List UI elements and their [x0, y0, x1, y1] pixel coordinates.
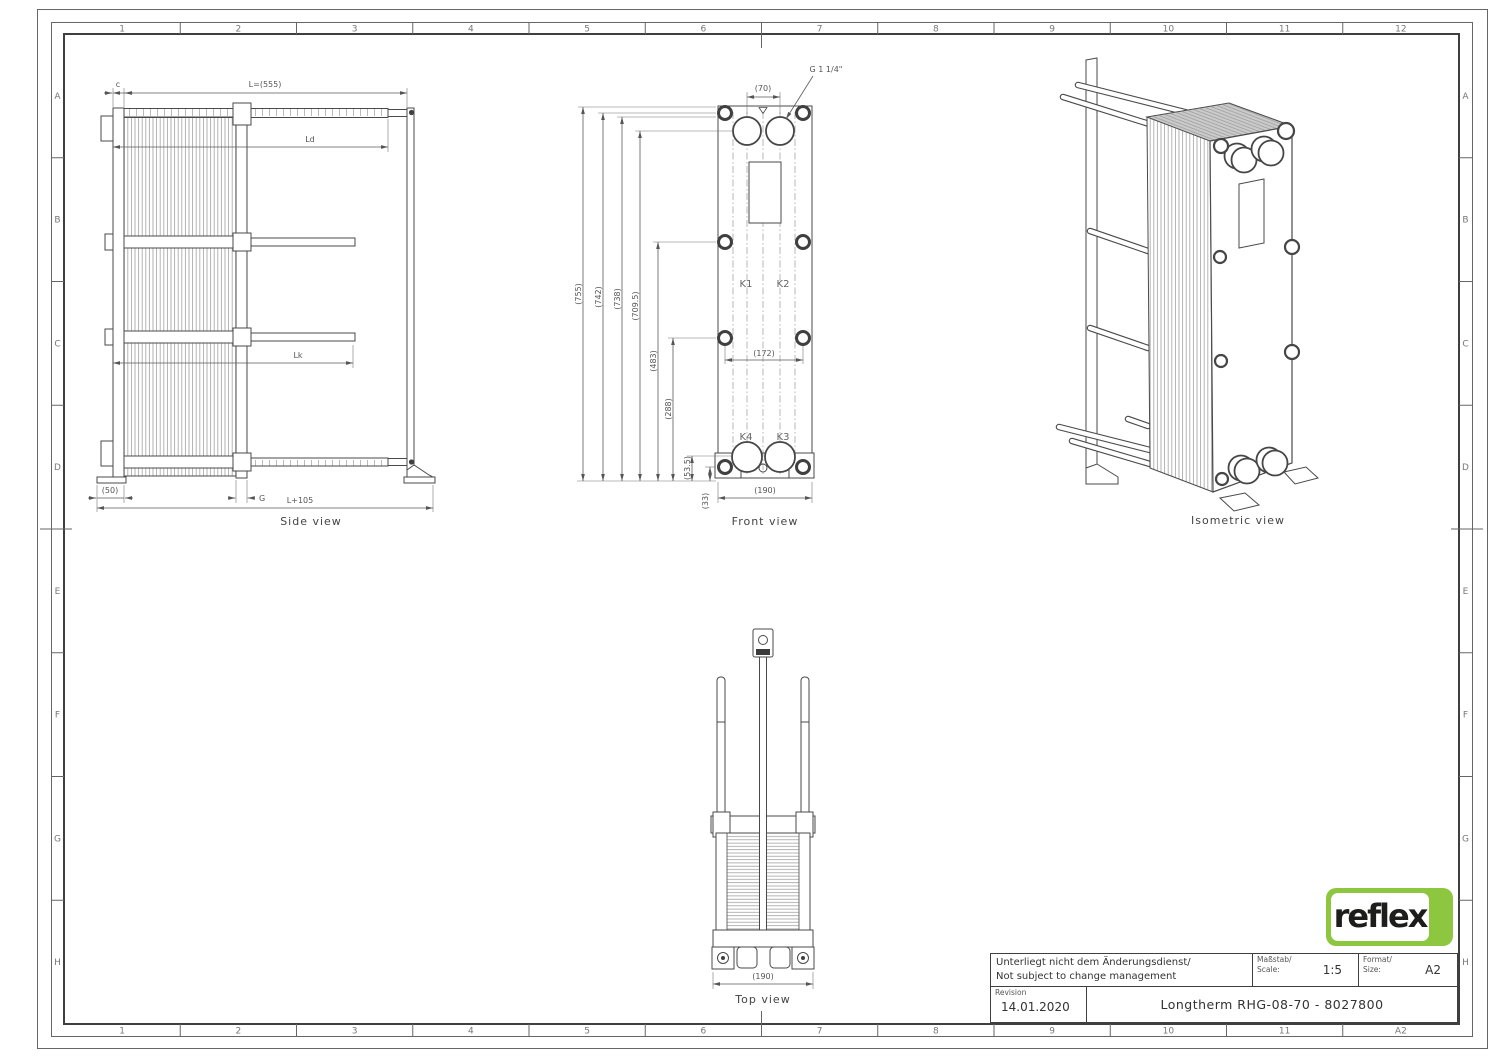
- port-k3-label: K3: [777, 432, 790, 443]
- carrying-bar-top-view: [760, 657, 767, 930]
- side-view: c L=(555) Ld Lk (50) G L+105 Side view: [88, 80, 435, 528]
- grid-col-top-12: 12: [1395, 25, 1406, 35]
- grid-row-right-G: G: [1462, 834, 1469, 844]
- grid-col-top-11: 11: [1279, 25, 1290, 35]
- revision-date: 14.01.2020: [1001, 1000, 1082, 1014]
- iso-front-plate: [1210, 126, 1292, 492]
- reflex-logo-text: reflex: [1334, 897, 1427, 935]
- tie-rod-top-view: [801, 677, 809, 817]
- grid-row-left-C: C: [54, 339, 60, 349]
- grid-col-top-9: 9: [1049, 25, 1055, 35]
- dim-height-33: (33): [701, 493, 710, 509]
- dim-Lk-label: Lk: [293, 351, 302, 360]
- tie-bolt: [797, 332, 810, 345]
- grid-col-bottom-1: 1: [119, 1027, 125, 1037]
- grid-row-right-F: F: [1463, 711, 1468, 721]
- dim-top-width-label: (190): [752, 972, 774, 981]
- pressure-plate: [236, 108, 247, 478]
- grid-row-left-F: F: [55, 711, 60, 721]
- dim-foot-label: (50): [102, 486, 118, 495]
- grid-col-bottom-8: 8: [933, 1027, 939, 1037]
- nameplate: [749, 162, 781, 223]
- tie-bolt: [719, 107, 732, 120]
- dim-port-spacing-label: (70): [755, 84, 771, 93]
- dim-Ld-label: Ld: [305, 135, 315, 144]
- side-view-label: Side view: [280, 515, 342, 528]
- bottom-tie-rod: [251, 458, 388, 466]
- grid-col-top-1: 1: [119, 25, 125, 35]
- change-note-en: Not subject to change management: [996, 970, 1247, 984]
- carrying-bar: [124, 109, 388, 118]
- grid-row-left-E: E: [55, 587, 61, 597]
- grid-col-bottom-A2: A2: [1395, 1027, 1407, 1037]
- front-view: K1 K2 K4 K3 (70) G 1 1/4" (755) (742) (7…: [574, 65, 842, 528]
- dim-bolt-spacing-label: (172): [753, 349, 775, 358]
- format-cell: Format/ Size: A2: [1359, 954, 1457, 986]
- left-foot: [97, 477, 126, 483]
- grid-row-left-H: H: [54, 958, 61, 968]
- reflex-logo-inner: reflex: [1331, 893, 1429, 941]
- lower-guide-rod: [247, 333, 355, 341]
- grid-row-right-E: E: [1463, 587, 1469, 597]
- port-top-view: [770, 947, 790, 968]
- format-label-de: Format/: [1363, 955, 1392, 964]
- port-k3: [765, 442, 795, 472]
- drawing-title: Longtherm RHG-08-70 - 8027800: [1087, 987, 1457, 1022]
- dim-front-width-label: (190): [754, 486, 776, 495]
- dim-L-label: L=(555): [249, 80, 282, 89]
- grid-row-right-C: C: [1462, 339, 1468, 349]
- grid-col-top-2: 2: [236, 25, 242, 35]
- dim-height-755: (755): [574, 283, 583, 305]
- format-value: A2: [1425, 963, 1441, 977]
- scale-value: 1:5: [1323, 963, 1342, 977]
- dim-height-483: (483): [649, 350, 658, 372]
- grid-col-top-6: 6: [701, 25, 707, 35]
- port-thread-label: G 1 1/4": [810, 65, 843, 74]
- top-view: (190) Top view: [711, 629, 815, 1006]
- grid-col-top-8: 8: [933, 25, 939, 35]
- top-view-label: Top view: [734, 993, 790, 1006]
- grid-col-top-10: 10: [1163, 25, 1175, 35]
- scale-label-de: Maßstab/: [1257, 955, 1292, 964]
- grid-row-left-G: G: [54, 834, 61, 844]
- format-label-en: Size:: [1363, 965, 1381, 974]
- port-k1: [733, 117, 761, 145]
- scale-cell: Maßstab/ Scale: 1:5: [1253, 954, 1359, 986]
- grid-col-bottom-10: 10: [1163, 1027, 1175, 1037]
- tie-bolt: [797, 107, 810, 120]
- grid-col-top-4: 4: [468, 25, 474, 35]
- iso-support-column: [1086, 58, 1097, 472]
- iso-port: [1235, 459, 1260, 484]
- grid-col-bottom-7: 7: [817, 1027, 823, 1037]
- front-view-label: Front view: [732, 515, 799, 528]
- grid-row-left-B: B: [54, 216, 60, 226]
- port-k2: [766, 117, 794, 145]
- dim-c-label: c: [116, 80, 120, 89]
- grid-row-left-A: A: [54, 92, 61, 102]
- fixed-plate: [113, 108, 124, 478]
- dim-height-53-5: (53.5): [683, 456, 692, 480]
- grid-col-top-5: 5: [584, 25, 590, 35]
- tie-rod-top-view: [717, 677, 725, 817]
- tie-bolt: [719, 236, 732, 249]
- grid-col-bottom-5: 5: [584, 1027, 590, 1037]
- support-column: [407, 108, 414, 470]
- grid-row-left-D: D: [54, 463, 61, 473]
- tie-bolt: [797, 236, 810, 249]
- grid-col-top-3: 3: [352, 25, 358, 35]
- change-note: Unterliegt nicht dem Änderungsdienst/ No…: [991, 954, 1253, 986]
- port-k2-label: K2: [777, 279, 790, 290]
- grid-row-right-A: A: [1462, 92, 1469, 102]
- upper-guide-rod: [247, 238, 355, 246]
- tie-bolt: [797, 461, 810, 474]
- port-top-view: [737, 947, 757, 968]
- plate-pack-side: [124, 117, 236, 476]
- grid-col-bottom-3: 3: [352, 1027, 358, 1037]
- revision-cell: Revision 14.01.2020: [991, 987, 1087, 1022]
- grid-col-top-7: 7: [817, 25, 823, 35]
- tie-bolt: [719, 461, 732, 474]
- drawing-sheet: 1122334455667788991010111112A2AABBCCDDEE…: [0, 0, 1500, 1061]
- grid-row-right-H: H: [1462, 958, 1469, 968]
- dim-G-label: G: [259, 494, 265, 503]
- isometric-view: Isometric view: [1059, 58, 1318, 527]
- title-block: Unterliegt nicht dem Änderungsdienst/ No…: [990, 953, 1458, 1023]
- grid-col-bottom-6: 6: [701, 1027, 707, 1037]
- isometric-view-label: Isometric view: [1191, 514, 1285, 527]
- revision-label: Revision: [995, 988, 1082, 998]
- dim-height-288: (288): [664, 398, 673, 420]
- grid-col-bottom-2: 2: [236, 1027, 242, 1037]
- port-k4-label: K4: [740, 432, 753, 443]
- iso-port: [1259, 141, 1284, 166]
- port-k1-label: K1: [740, 279, 753, 290]
- port-k4: [732, 442, 762, 472]
- iso-foot: [1284, 467, 1318, 484]
- reflex-logo: reflex: [1326, 888, 1453, 946]
- dim-total-label: L+105: [287, 496, 313, 505]
- scale-label-en: Scale:: [1257, 965, 1280, 974]
- grid-col-bottom-4: 4: [468, 1027, 474, 1037]
- grid-row-right-B: B: [1462, 216, 1468, 226]
- grid-col-bottom-11: 11: [1279, 1027, 1290, 1037]
- change-note-de: Unterliegt nicht dem Änderungsdienst/: [996, 956, 1247, 970]
- dim-height-738: (738): [613, 288, 622, 310]
- iso-foot: [1220, 493, 1259, 511]
- grid-row-right-D: D: [1462, 463, 1469, 473]
- dim-height-742: (742): [594, 286, 603, 308]
- dim-height-709-5: (709.5): [631, 291, 640, 320]
- grid-col-bottom-9: 9: [1049, 1027, 1055, 1037]
- tie-bolt: [719, 332, 732, 345]
